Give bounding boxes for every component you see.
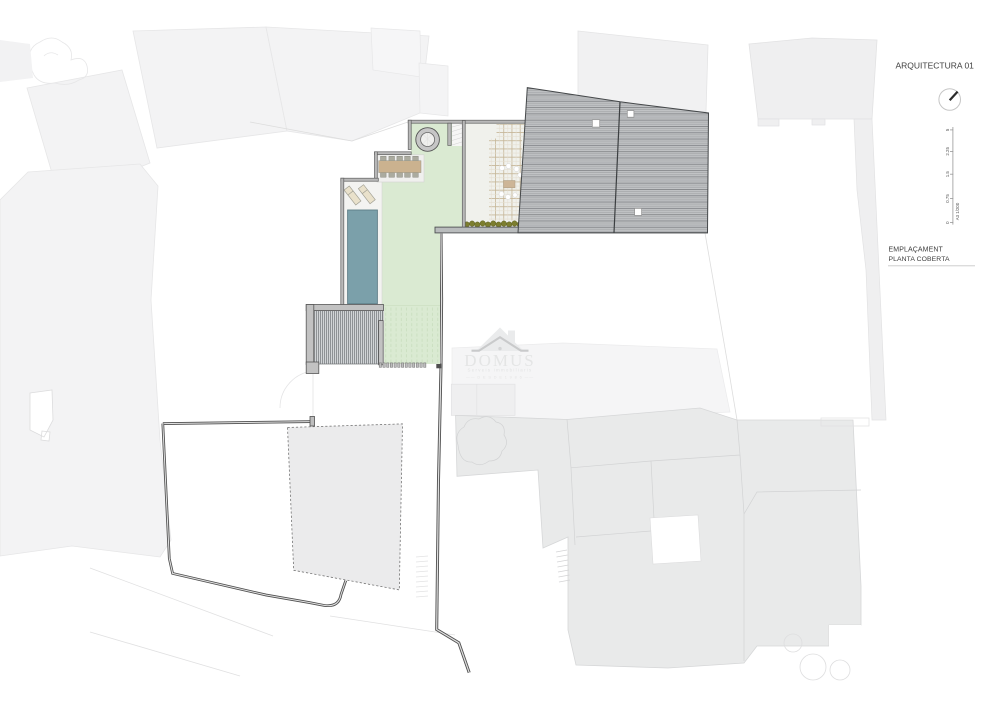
svg-text:2.25: 2.25: [945, 147, 950, 156]
svg-text:0.75: 0.75: [945, 194, 950, 203]
svg-text:Serveis immobiliaris: Serveis immobiliaris: [467, 368, 532, 373]
svg-text:EMPLAÇAMENT: EMPLAÇAMENT: [889, 247, 944, 254]
svg-text:—— D E S D E 1 9 8 6 ——: —— D E S D E 1 9 8 6 ——: [466, 375, 534, 379]
svg-text:1.5: 1.5: [945, 171, 950, 178]
svg-text:A3 1/200: A3 1/200: [955, 202, 960, 220]
svg-text:PLANTA COBERTA: PLANTA COBERTA: [889, 256, 950, 263]
svg-text:ARQUITECTURA 01: ARQUITECTURA 01: [896, 60, 975, 70]
